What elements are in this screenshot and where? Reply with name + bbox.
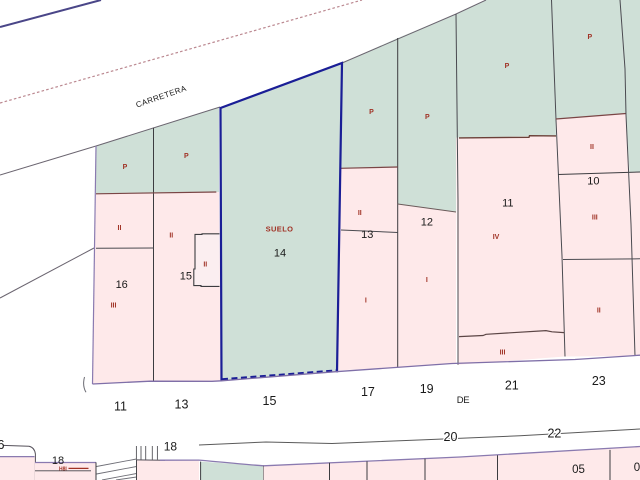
svg-text:DE: DE	[457, 395, 470, 406]
svg-text:P: P	[587, 34, 592, 41]
svg-text:P: P	[425, 114, 430, 121]
svg-text:P: P	[369, 109, 374, 116]
svg-text:II: II	[169, 233, 173, 240]
svg-text:11: 11	[114, 400, 127, 414]
svg-text:P: P	[505, 63, 510, 70]
svg-text:I: I	[426, 277, 428, 284]
svg-text:II: II	[118, 225, 122, 232]
svg-text:III: III	[500, 350, 506, 357]
svg-text:15: 15	[263, 394, 277, 408]
svg-text:III: III	[592, 214, 598, 221]
svg-text:22: 22	[547, 426, 561, 440]
svg-text:P: P	[123, 164, 128, 171]
svg-text:0: 0	[634, 462, 640, 474]
svg-text:IV: IV	[493, 234, 500, 241]
svg-text:18: 18	[52, 455, 64, 467]
svg-text:SUELO: SUELO	[266, 224, 294, 233]
svg-text:05: 05	[572, 464, 585, 476]
svg-text:11: 11	[502, 197, 513, 209]
svg-text:12: 12	[421, 216, 433, 228]
svg-text:21: 21	[505, 379, 519, 393]
svg-text:16: 16	[116, 279, 128, 291]
svg-text:17: 17	[361, 385, 375, 399]
svg-text:H8I: H8I	[59, 467, 67, 473]
svg-text:I: I	[365, 297, 367, 304]
svg-text:18: 18	[164, 439, 178, 453]
svg-text:10: 10	[587, 175, 599, 187]
svg-text:II: II	[597, 308, 601, 315]
svg-text:23: 23	[592, 374, 606, 388]
svg-text:II: II	[590, 144, 594, 151]
svg-text:II: II	[358, 210, 362, 217]
svg-text:P: P	[184, 153, 189, 160]
svg-text:6: 6	[0, 438, 5, 452]
svg-text:13: 13	[361, 229, 373, 241]
svg-text:15: 15	[180, 270, 192, 282]
svg-text:III: III	[111, 302, 117, 309]
svg-text:19: 19	[420, 382, 434, 396]
svg-text:14: 14	[274, 248, 286, 260]
svg-text:II: II	[203, 261, 207, 268]
svg-text:13: 13	[175, 398, 189, 412]
svg-text:20: 20	[444, 430, 458, 444]
